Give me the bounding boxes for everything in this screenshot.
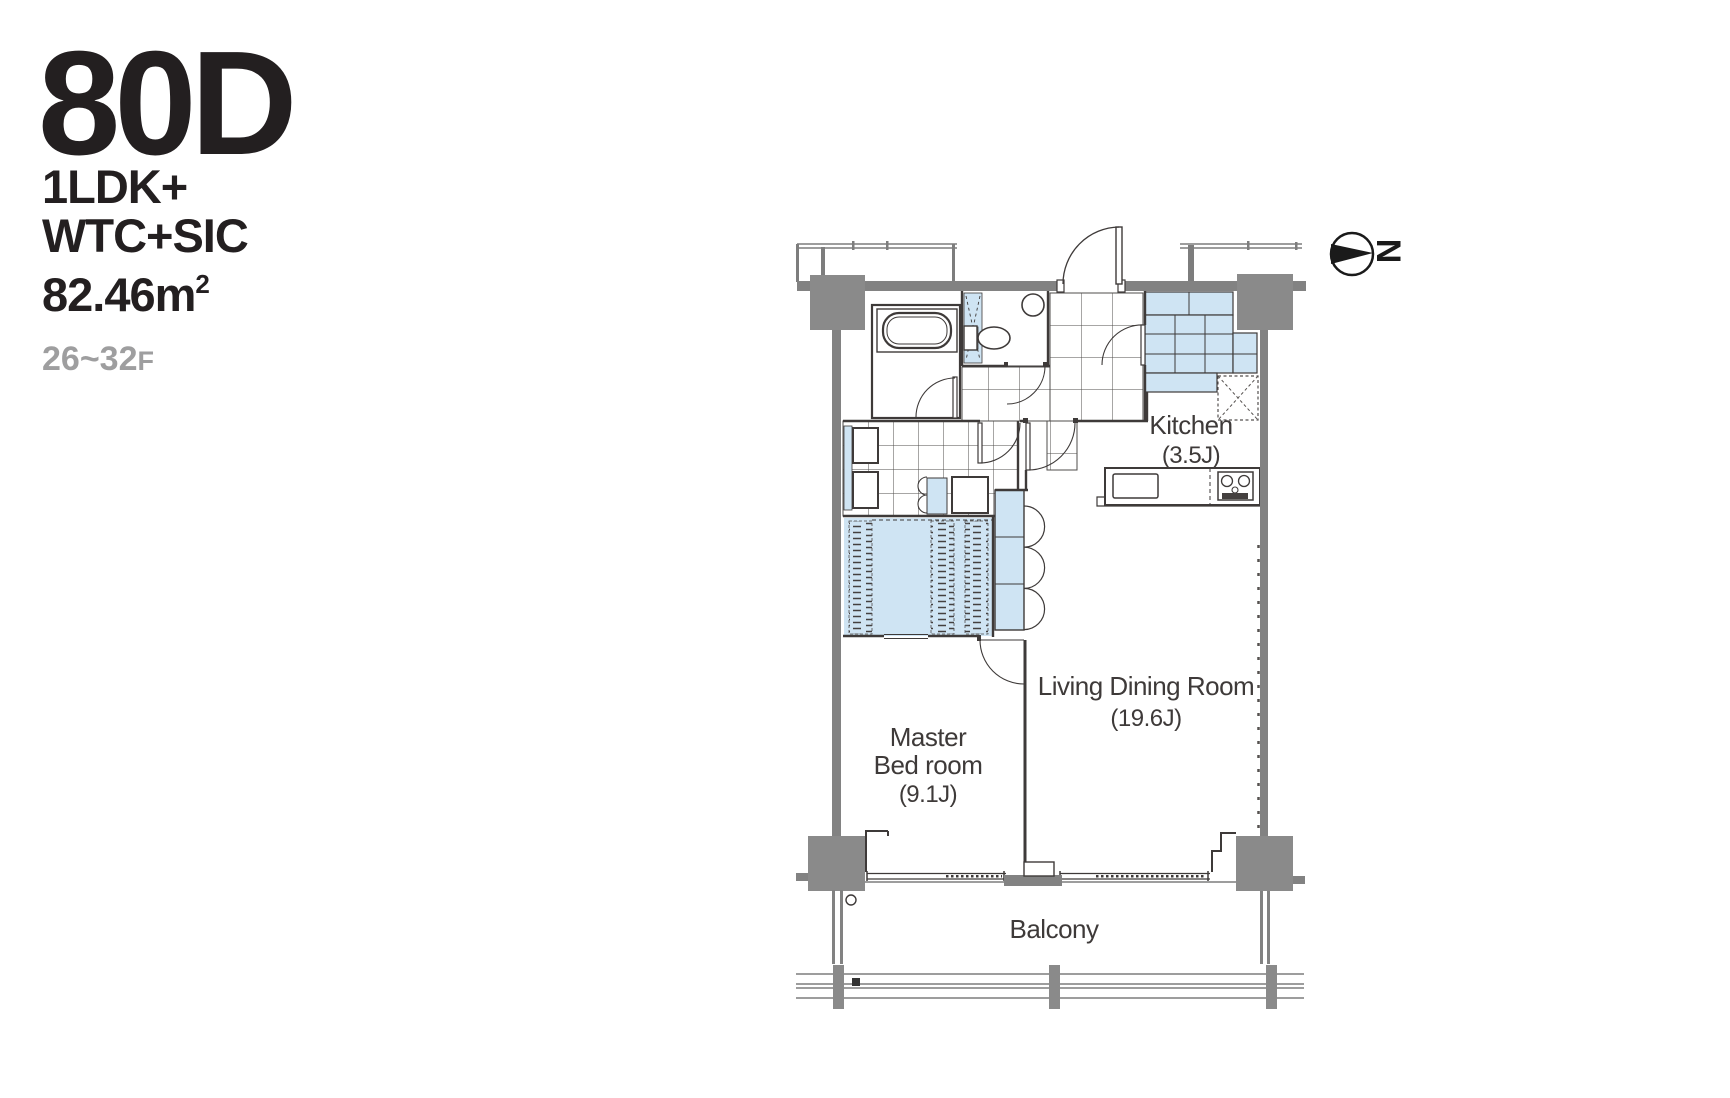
- balcony-label: Balcony: [1010, 914, 1099, 944]
- bedroom-door: [977, 635, 1025, 872]
- washer-space: [853, 428, 878, 463]
- kitchen-label: Kitchen: [1149, 410, 1232, 440]
- balcony: [796, 890, 1304, 1009]
- toilet-bowl: [978, 327, 1010, 349]
- bedroom-closet: [995, 470, 1045, 630]
- master-size-label: (9.1J): [899, 781, 957, 808]
- floor-plan: N Kitchen (3.5J) Living Dining Room (19.…: [0, 0, 1730, 1098]
- north-compass: N: [1331, 233, 1407, 275]
- kitchen-sink: [1113, 474, 1158, 498]
- linen-cabinet: [853, 472, 878, 508]
- bathroom: [872, 305, 960, 418]
- master-label-line1: Master: [890, 722, 967, 752]
- toilet-basin: [1022, 294, 1044, 316]
- floorplan-page: 80D 1LDK+ WTC+SIC 82.46m2 26~32F: [0, 0, 1730, 1098]
- toilet-tank: [964, 326, 977, 350]
- entrance-door: [1057, 227, 1125, 292]
- balcony-windows: [865, 831, 1237, 886]
- compass-label: N: [1369, 239, 1407, 264]
- walk-through-closet: [843, 516, 993, 639]
- corridor-railing: [796, 241, 1302, 282]
- master-label-line2: Bed room: [874, 750, 983, 780]
- kitchen-size-label: (3.5J): [1162, 442, 1220, 469]
- living-size-label: (19.6J): [1110, 705, 1181, 732]
- living-label: Living Dining Room: [1038, 671, 1254, 701]
- entrance-door-arc: [1063, 227, 1119, 284]
- closet-folding-doors: [1024, 506, 1045, 630]
- balcony-drain: [846, 895, 856, 905]
